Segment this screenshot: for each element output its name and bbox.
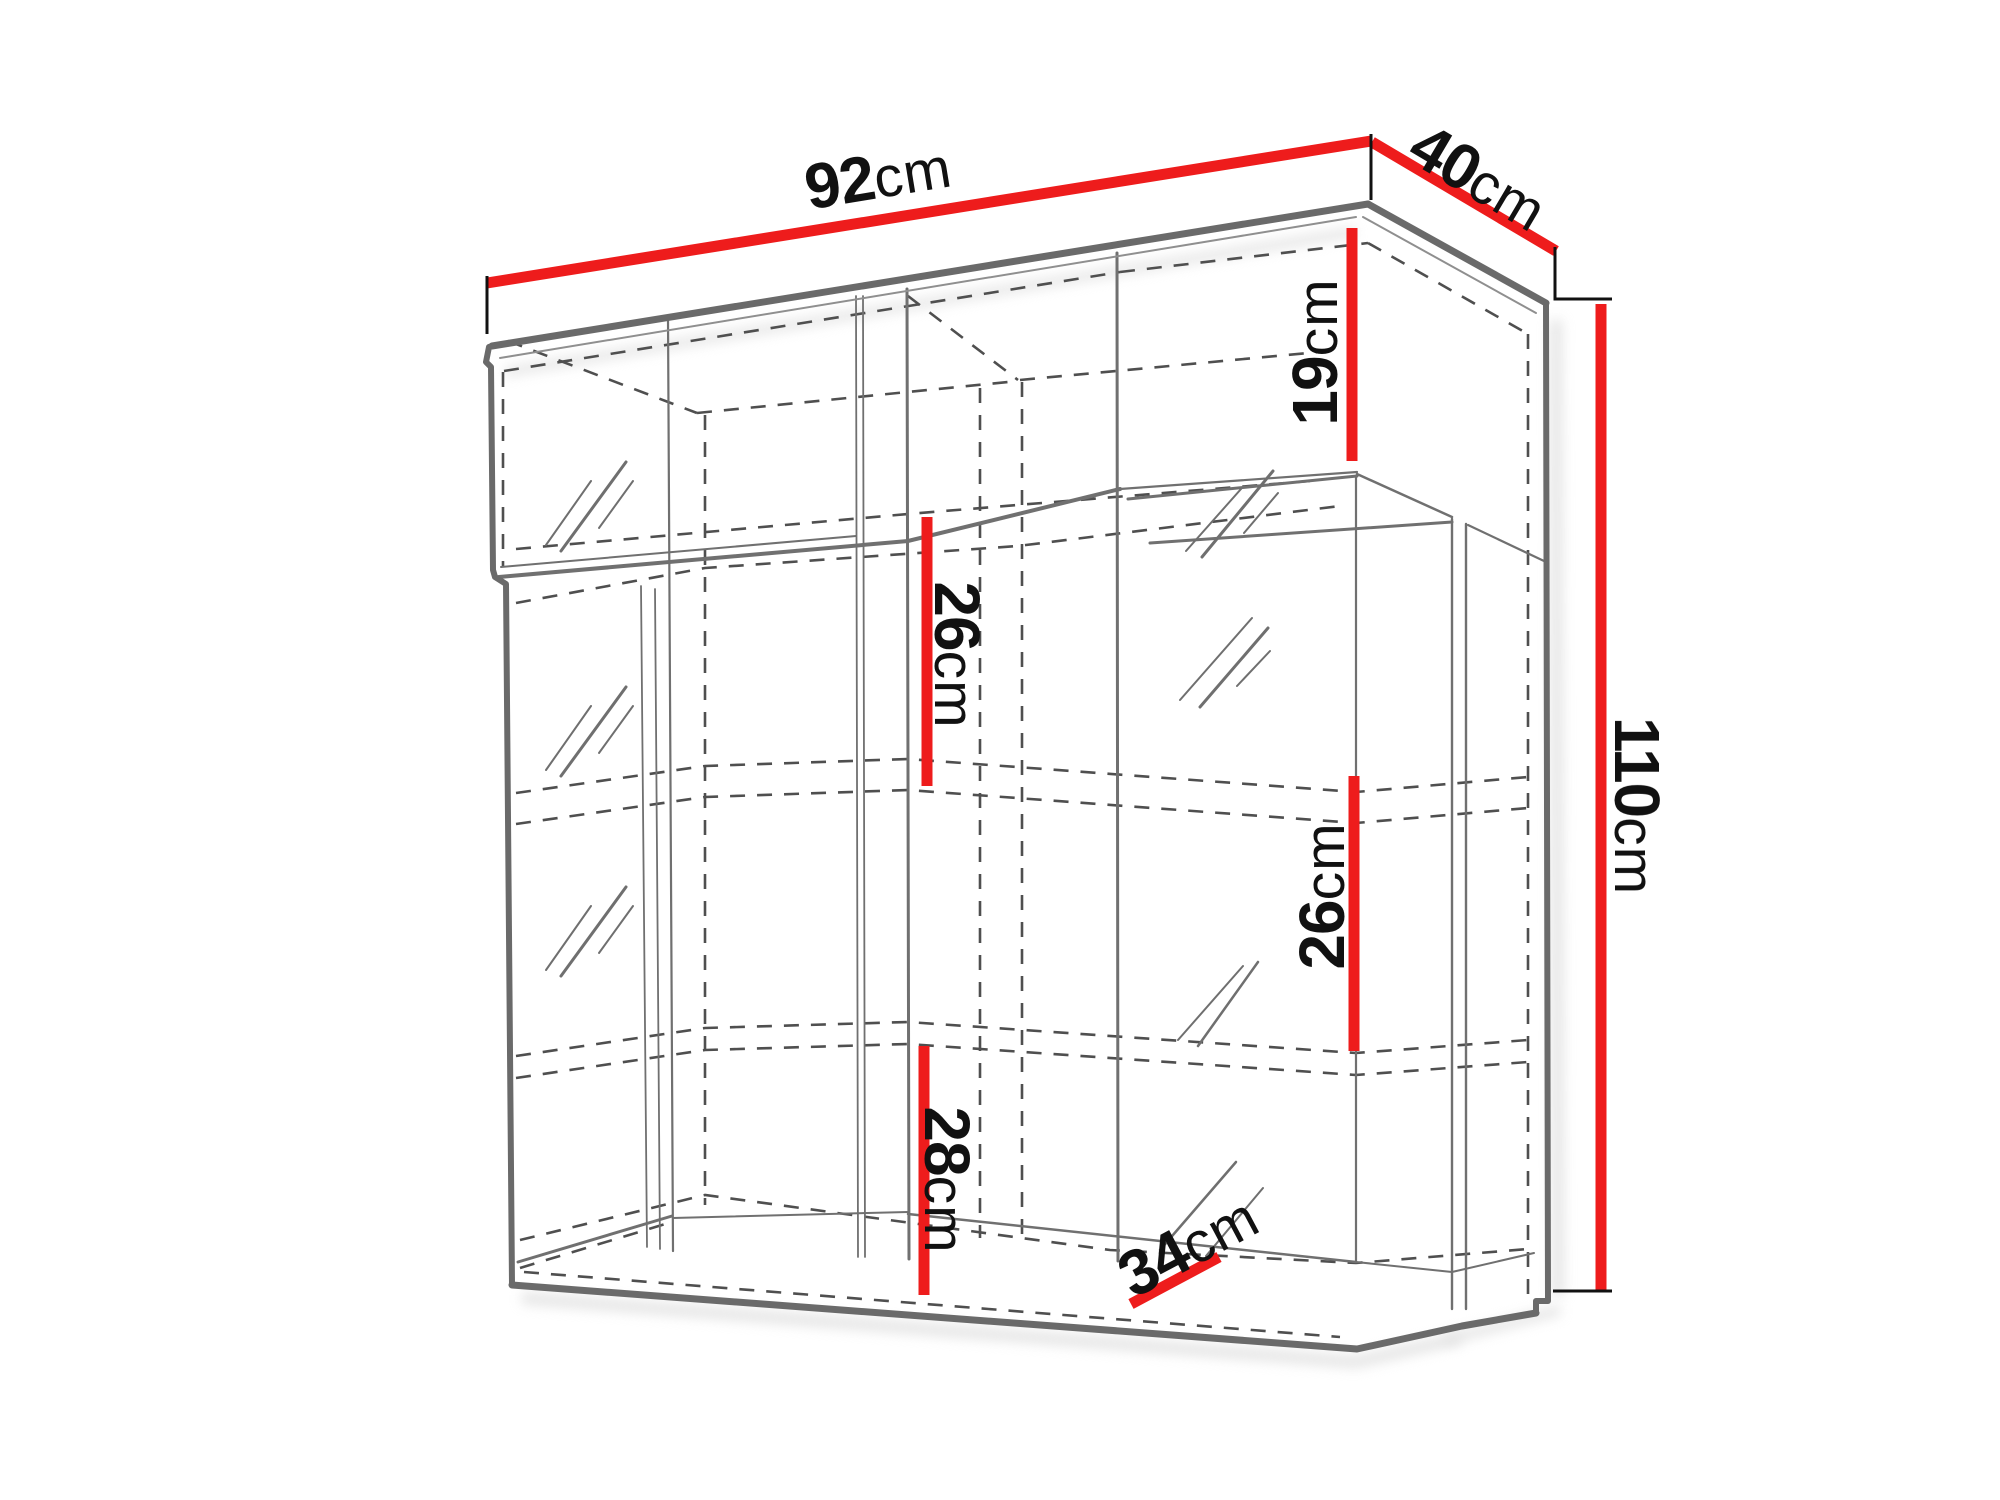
dimension-unit: cm [1293, 822, 1357, 900]
cabinet-outline [486, 204, 1548, 1349]
dimension-unit: cm [922, 651, 986, 729]
dimension-value: 110 [1601, 717, 1673, 817]
furniture-dimension-diagram: 92cm 40cm 19cm 110cm 26cm 26cm 28cm 34cm [0, 0, 2000, 1500]
dimension-label-upper-compartment-height: 19cm [1283, 278, 1347, 425]
dimension-value: 92 [800, 141, 880, 223]
cabinet-line-art [0, 0, 2000, 1500]
dimension-label-right-shelf-gap: 26cm [1290, 822, 1354, 969]
dimension-lines [487, 141, 1601, 1304]
dimension-unit: cm [1286, 278, 1350, 356]
dimension-unit: cm [869, 135, 956, 211]
dimension-value: 26 [921, 581, 993, 650]
dimension-label-bottom-section-height: 28cm [915, 1106, 979, 1253]
dimension-value: 26 [1286, 900, 1358, 969]
dimension-value: 19 [1279, 356, 1351, 425]
dimension-unit: cm [1602, 817, 1666, 895]
dimension-label-total-height: 110cm [1605, 717, 1669, 895]
dimension-value: 28 [911, 1106, 983, 1175]
dimension-unit: cm [912, 1176, 976, 1254]
dimension-label-middle-shelf-gap: 26cm [925, 581, 989, 728]
